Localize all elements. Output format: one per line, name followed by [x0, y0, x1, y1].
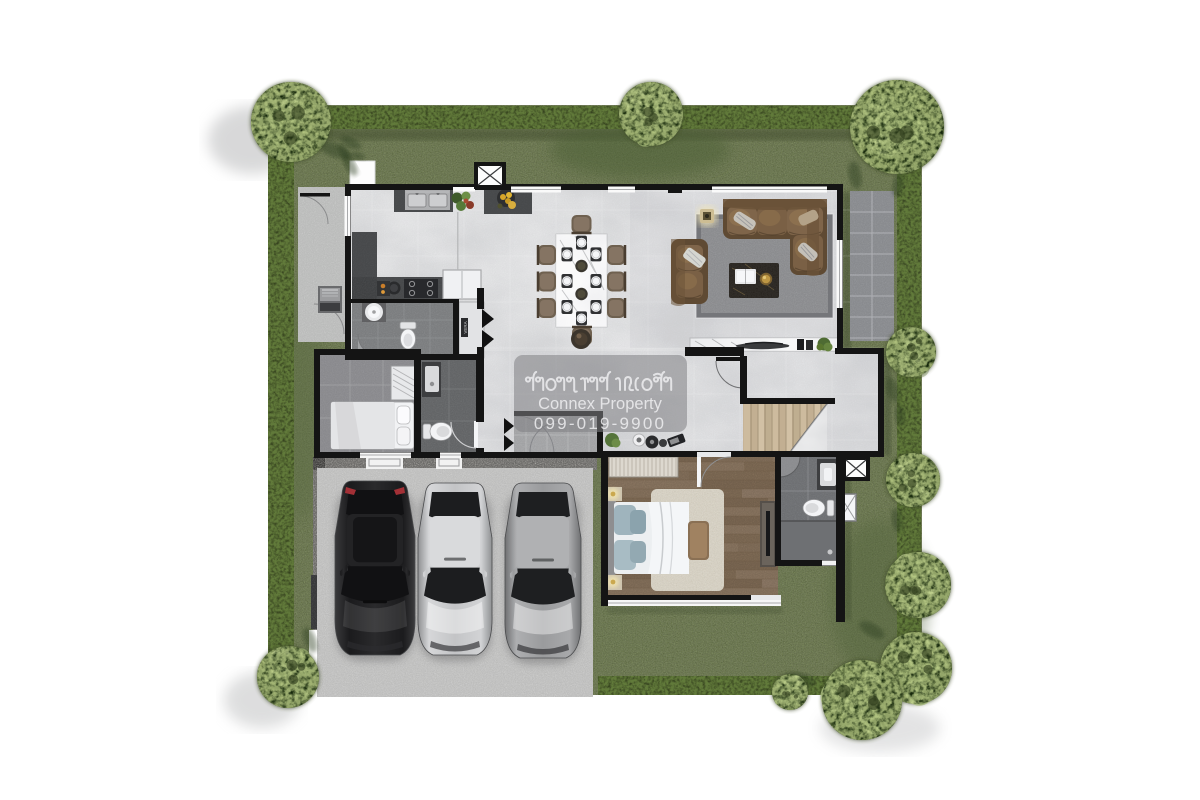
svg-text:VERA: VERA [463, 321, 468, 333]
svg-text:Connex Property: Connex Property [538, 395, 663, 413]
svg-text:099-019-9900: 099-019-9900 [534, 414, 666, 433]
